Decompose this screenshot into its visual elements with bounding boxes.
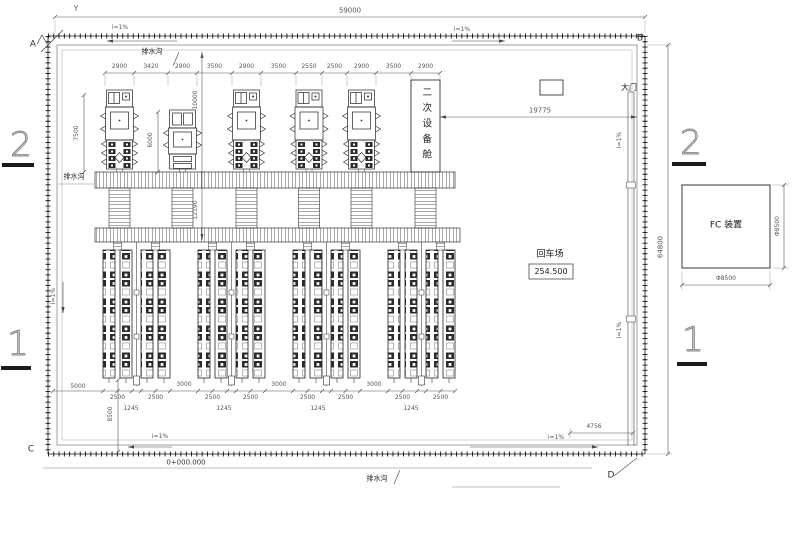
- drain-label-1: 排水沟: [64, 174, 85, 181]
- slope-label-1: i=1%: [454, 27, 470, 33]
- grid-row1-right: 1: [682, 323, 704, 357]
- annotation-layer: 59000 Y A B C D 19775 64800 0+000.000 大门…: [0, 0, 800, 540]
- chainage-label: 0+000.000: [166, 460, 205, 467]
- dim-top-chain-4: 2900: [239, 64, 254, 70]
- dim-rack-pair-2: 2500: [205, 395, 220, 401]
- dim-top-chain-8: 2900: [354, 64, 369, 70]
- dim-top-chain-6: 2550: [301, 64, 316, 70]
- drain-label-2: 排水沟: [367, 476, 388, 483]
- grid-row2-right-underline: [672, 162, 706, 166]
- dim-trench-lower: 12190: [193, 200, 199, 219]
- dim-racks-to-fence: 8500: [108, 406, 114, 421]
- dim-rack-gap-0: 3000: [176, 382, 191, 388]
- dim-top-chain-2: 2900: [175, 64, 190, 70]
- grid-mark-a: A: [30, 41, 36, 50]
- dim-top-chain-9: 3500: [386, 64, 401, 70]
- axis-y-symbol: Y: [74, 5, 79, 13]
- gate-label: 大门: [621, 84, 637, 92]
- dim-rack-pair-6: 2500: [395, 395, 410, 401]
- site-plan-drawing: 59000 Y A B C D 19775 64800 0+000.000 大门…: [0, 0, 800, 540]
- fc-size-dim-bottom: Φ8500: [716, 276, 736, 282]
- dim-rack-half-2: 1245: [310, 406, 325, 412]
- fc-unit-label: FC 装置: [710, 222, 742, 231]
- grid-row1-left: 1: [7, 327, 29, 361]
- dim-trench-upper: 10000: [193, 90, 199, 109]
- dim-rack-pair-3: 2500: [243, 395, 258, 401]
- dim-transformer2-height: 6000: [148, 132, 154, 147]
- slope-label-2: i=1%: [152, 434, 168, 440]
- dim-site-height: 64800: [658, 236, 665, 258]
- grid-row2-left-underline: [2, 163, 34, 167]
- grid-row1-left-underline: [1, 366, 31, 370]
- grid-mark-b: B: [637, 35, 643, 44]
- turnaround-elevation: 254.500: [534, 268, 567, 276]
- dim-rack-half-3: 1245: [403, 406, 418, 412]
- dim-rack-pair-1: 2500: [148, 395, 163, 401]
- dim-top-chain-7: 2500: [327, 64, 342, 70]
- turnaround-label: 回车场: [536, 251, 563, 260]
- dim-rack-gap-1: 3000: [271, 382, 286, 388]
- slope-label-5: i=1%: [617, 132, 623, 148]
- grid-mark-c: C: [28, 446, 34, 455]
- slope-label-6: i=1%: [617, 322, 623, 338]
- dim-site-width: 59000: [339, 8, 361, 15]
- dim-top-chain-10: 2900: [418, 64, 433, 70]
- dim-rack-pair-7: 2500: [433, 395, 448, 401]
- dim-top-chain-5: 3500: [271, 64, 286, 70]
- dim-edge-to-racks: 5000: [70, 384, 85, 390]
- dim-top-chain-0: 2900: [112, 64, 127, 70]
- slope-label-3: i=1%: [548, 435, 564, 441]
- grid-row2-right: 2: [680, 126, 702, 160]
- dim-rack-gap-2: 3000: [366, 382, 381, 388]
- grid-mark-d: D: [608, 472, 615, 481]
- dim-gate-offset: 19775: [529, 108, 551, 115]
- grid-row1-right-underline: [677, 362, 707, 366]
- dim-top-chain-1: 3420: [143, 64, 158, 70]
- fc-size-dim-right: Φ8500: [775, 216, 781, 236]
- drain-label-0: 排水沟: [142, 49, 163, 56]
- dim-rack-pair-5: 2500: [338, 395, 353, 401]
- dim-rack-pair-0: 2500: [110, 395, 125, 401]
- dim-corner-offset: 4756: [586, 424, 601, 430]
- dim-rack-pair-4: 2500: [300, 395, 315, 401]
- dim-rack-half-1: 1245: [216, 406, 231, 412]
- dim-transformer1-height: 7500: [74, 125, 80, 140]
- secondary-equipment-cabin-label: 二次设备舱: [421, 87, 431, 165]
- grid-row2-left: 2: [10, 128, 32, 162]
- dim-rack-half-0: 1245: [123, 406, 138, 412]
- dim-top-chain-3: 3500: [207, 64, 222, 70]
- slope-label-0: i=1%: [112, 25, 128, 31]
- slope-label-4: i=1%: [51, 288, 57, 304]
